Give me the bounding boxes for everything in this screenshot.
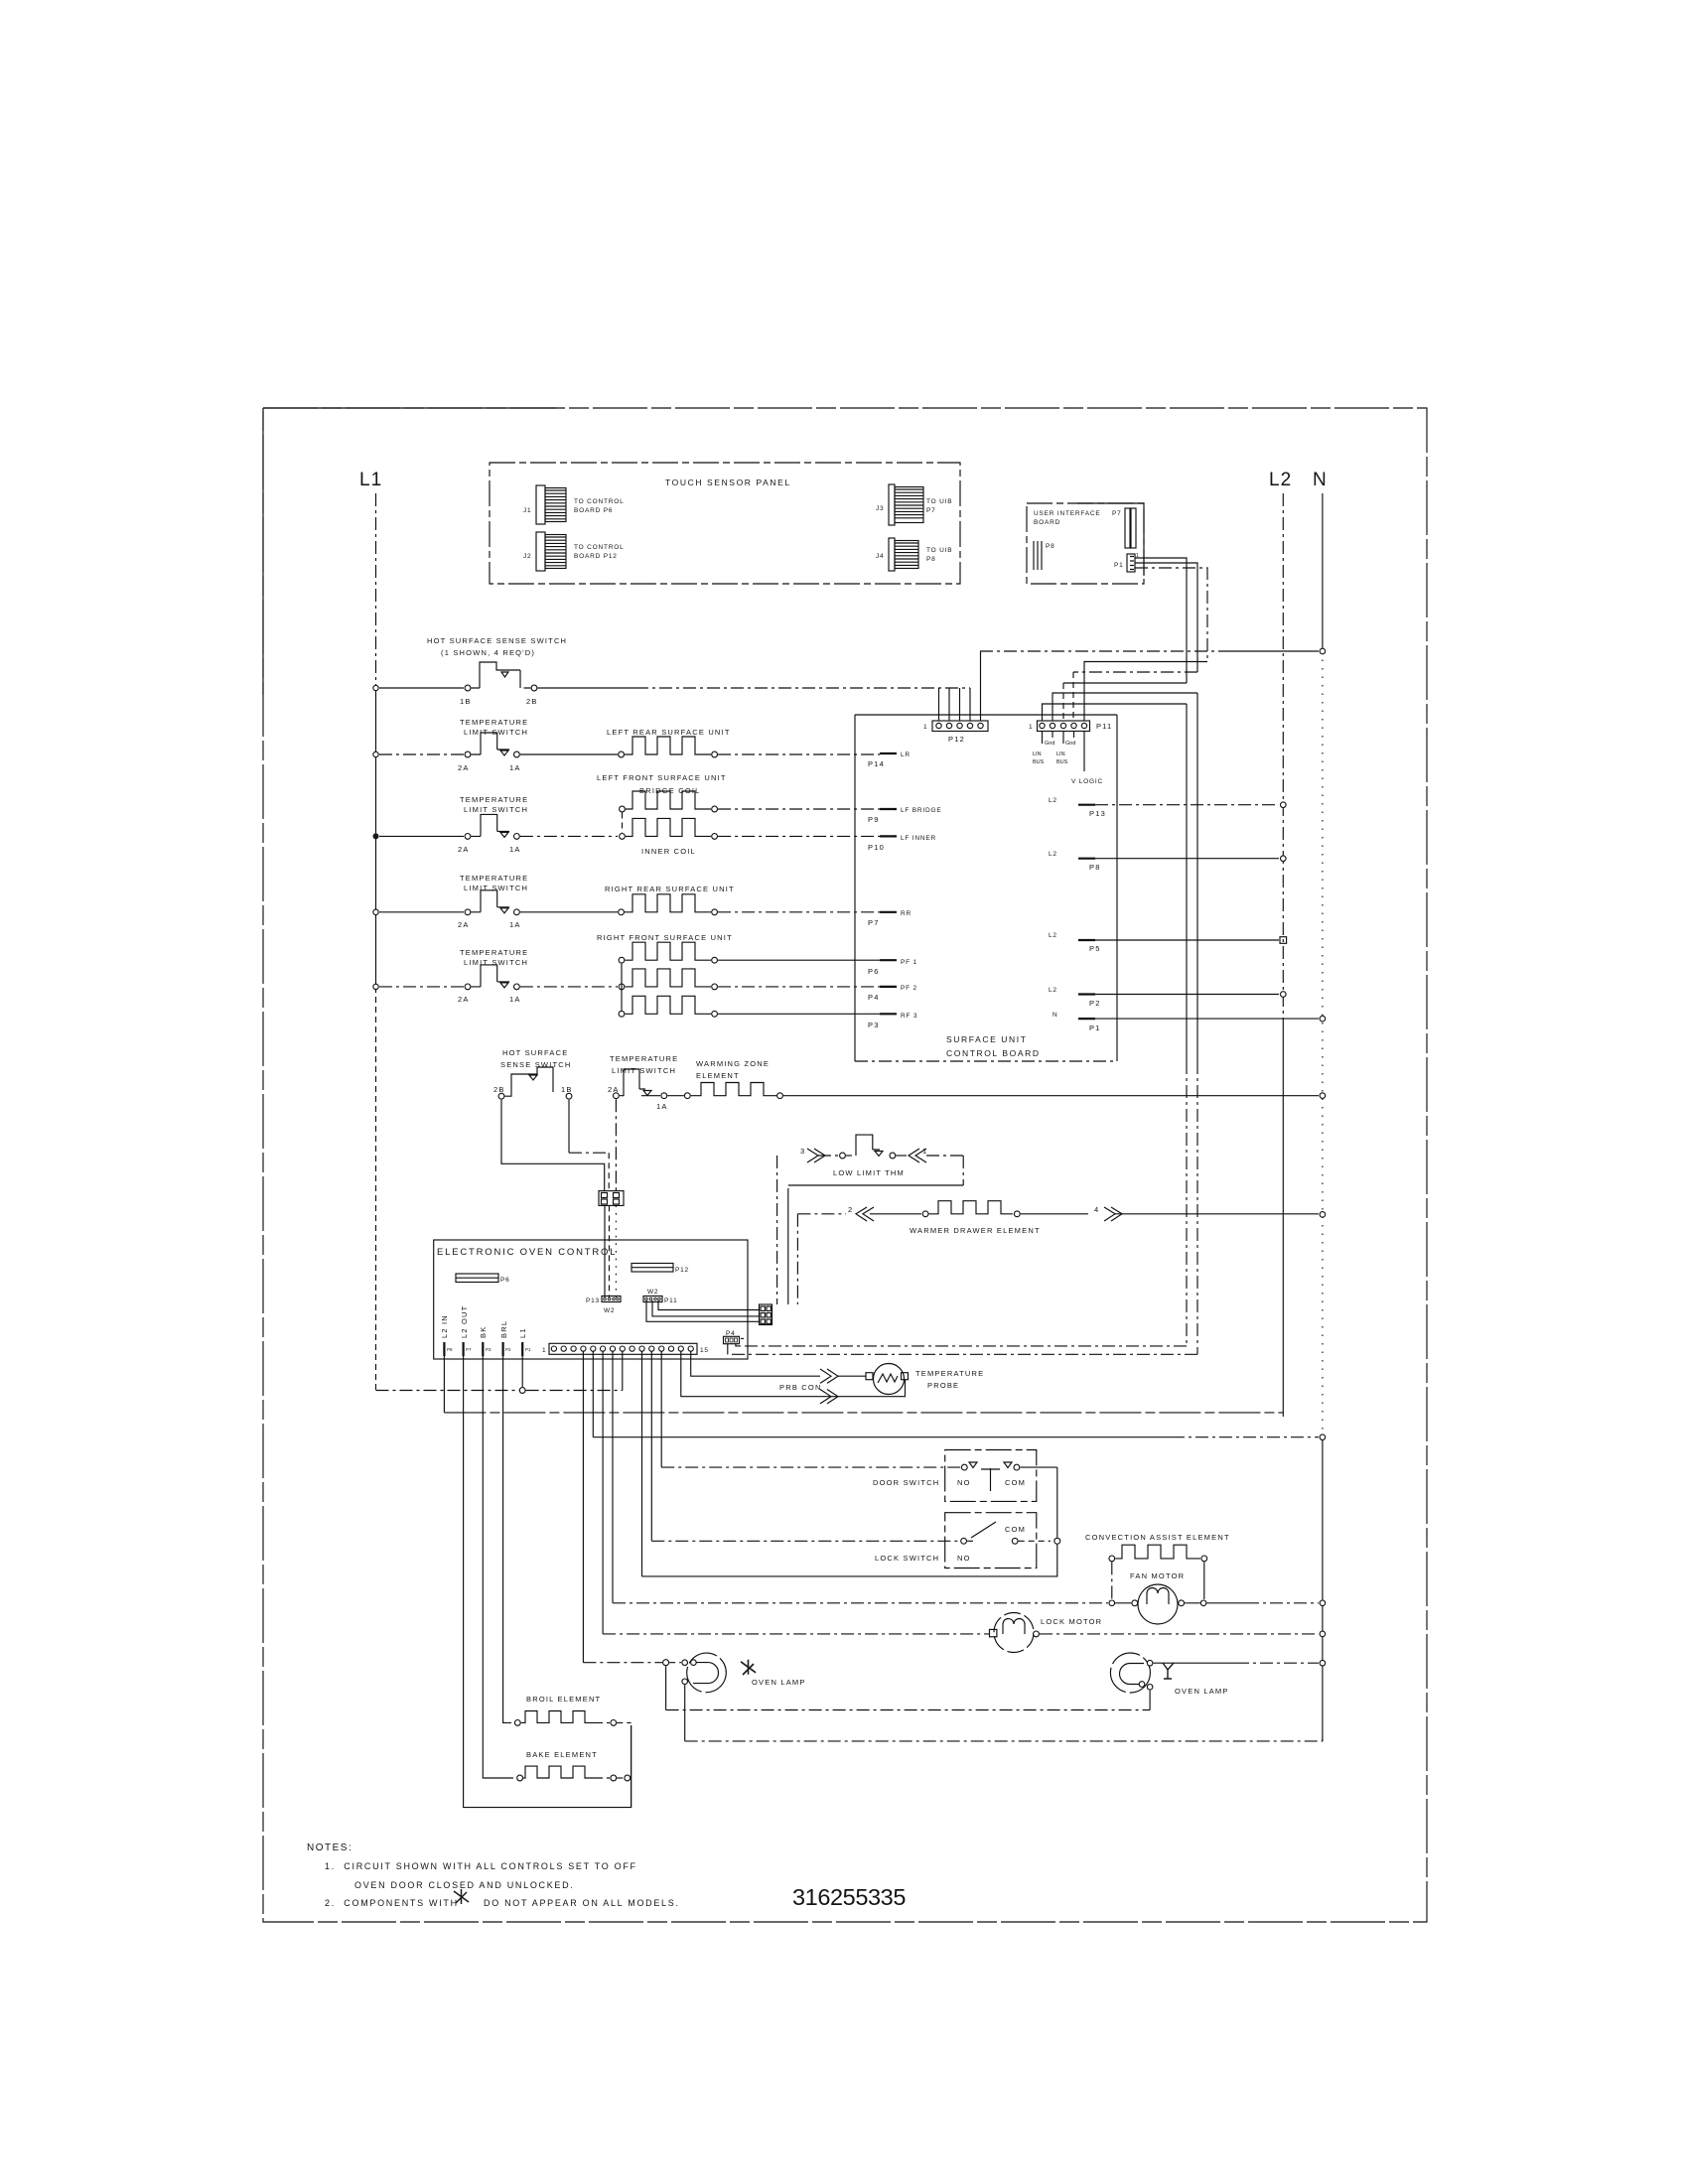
svg-text:P8: P8 [447,1347,453,1352]
svg-text:P11: P11 [664,1297,677,1304]
svg-text:BROIL ELEMENT: BROIL ELEMENT [526,1695,601,1704]
svg-text:LIMIT SWITCH: LIMIT SWITCH [612,1066,676,1075]
svg-text:1B: 1B [561,1085,573,1094]
svg-text:3: 3 [800,1147,805,1156]
svg-text:RIGHT FRONT SURFACE UNIT: RIGHT FRONT SURFACE UNIT [597,933,733,942]
svg-text:WARMING ZONE: WARMING ZONE [696,1059,770,1068]
svg-text:L2: L2 [1049,987,1057,994]
svg-text:2B: 2B [493,1085,505,1094]
svg-text:L2: L2 [1269,470,1292,490]
svg-text:W2: W2 [647,1289,658,1296]
svg-text:PRB CON: PRB CON [779,1383,822,1392]
svg-text:P4: P4 [868,993,880,1002]
svg-text:NOTES:: NOTES: [307,1843,352,1853]
svg-text:OVEN DOOR CLOSED AND UNLOCKED.: OVEN DOOR CLOSED AND UNLOCKED. [354,1880,575,1890]
svg-text:L2: L2 [1049,797,1057,804]
svg-text:LIN: LIN [1033,751,1042,757]
svg-text:TEMPERATURE: TEMPERATURE [915,1369,984,1378]
svg-text:1: 1 [923,724,927,731]
svg-text:P3: P3 [868,1021,880,1029]
svg-text:LEFT REAR SURFACE UNIT: LEFT REAR SURFACE UNIT [607,728,731,737]
svg-text:N: N [1313,470,1328,490]
svg-text:2. COMPONENTS WITH DO NO: 2. COMPONENTS WITH DO NOT APPEAR ON ALL … [325,1898,680,1908]
svg-text:P8: P8 [1046,543,1055,550]
svg-text:TEMPERATURE: TEMPERATURE [460,874,528,883]
svg-text:PROBE: PROBE [927,1381,959,1390]
svg-text:2A: 2A [458,845,470,854]
svg-text:N: N [1052,1012,1058,1019]
svg-text:LR: LR [901,751,911,758]
svg-text:1: 1 [1029,724,1033,731]
svg-text:RR: RR [901,910,912,917]
svg-text:P7: P7 [926,507,936,514]
svg-text:LF BRIDGE: LF BRIDGE [901,807,942,814]
svg-text:HOT SURFACE SENSE SWITCH: HOT SURFACE SENSE SWITCH [427,636,567,645]
svg-text:BUS: BUS [1056,759,1068,765]
svg-text:P5: P5 [1089,944,1101,953]
svg-text:LIN: LIN [1056,751,1065,757]
svg-text:BUS: BUS [1033,759,1045,765]
svg-text:TEMPERATURE: TEMPERATURE [460,718,528,727]
svg-text:DOOR SWITCH: DOOR SWITCH [873,1478,939,1487]
svg-text:HOT SURFACE: HOT SURFACE [502,1048,568,1057]
svg-text:1A: 1A [656,1102,668,1111]
svg-text:1A: 1A [509,763,521,772]
svg-text:L2: L2 [1049,932,1057,939]
svg-text:BOARD: BOARD [1034,519,1060,526]
svg-text:LIMIT SWITCH: LIMIT SWITCH [464,958,528,967]
svg-text:P1: P1 [1114,562,1124,569]
svg-text:2: 2 [848,1205,853,1214]
svg-text:V LOGIC: V LOGIC [1071,778,1103,785]
svg-text:P6: P6 [868,967,880,976]
svg-text:BOARD P12: BOARD P12 [574,553,618,560]
svg-text:L1: L1 [359,470,382,490]
svg-text:BAKE ELEMENT: BAKE ELEMENT [526,1750,598,1759]
svg-text:COM: COM [1005,1525,1026,1534]
svg-text:15: 15 [700,1347,709,1354]
svg-text:(1 SHOWN, 4 REQ'D): (1 SHOWN, 4 REQ'D) [441,648,535,657]
svg-text:4: 4 [1094,1205,1099,1214]
svg-text:P1: P1 [525,1347,531,1352]
svg-text:P14: P14 [868,759,885,768]
svg-text:P2: P2 [1089,999,1101,1008]
svg-text:1: 1 [922,1147,927,1156]
svg-text:P12: P12 [948,735,965,744]
svg-text:SURFACE UNIT: SURFACE UNIT [946,1034,1028,1044]
svg-text:P2: P2 [505,1347,511,1352]
svg-text:TO CONTROL: TO CONTROL [574,498,625,505]
svg-text:BK: BK [479,1326,488,1338]
svg-text:2A: 2A [458,763,470,772]
svg-text:FAN MOTOR: FAN MOTOR [1130,1571,1185,1580]
svg-text:TO UIB: TO UIB [926,498,952,505]
svg-text:ELEMENT: ELEMENT [696,1071,740,1080]
svg-text:P8: P8 [1089,863,1101,872]
svg-text:J3: J3 [876,505,884,512]
svg-text:NO: NO [957,1478,971,1487]
svg-text:TO CONTROL: TO CONTROL [574,544,625,551]
svg-text:1. CIRCUIT SHOWN WITH ALL CON: 1. CIRCUIT SHOWN WITH ALL CONTROLS SET T… [325,1861,637,1871]
svg-text:1A: 1A [509,920,521,929]
svg-text:USER INTERFACE: USER INTERFACE [1034,510,1101,517]
svg-text:TOUCH SENSOR PANEL: TOUCH SENSOR PANEL [665,478,791,487]
svg-text:P13: P13 [1089,809,1106,818]
svg-text:PF 2: PF 2 [901,985,917,992]
svg-text:P13: P13 [586,1297,600,1304]
svg-text:P6: P6 [500,1277,510,1284]
svg-text:1A: 1A [509,995,521,1004]
svg-text:P8: P8 [926,556,936,563]
svg-text:LF INNER: LF INNER [901,835,936,842]
svg-text:Gnd: Gnd [1065,741,1075,747]
svg-text:P10: P10 [868,843,885,852]
svg-text:OVEN LAMP: OVEN LAMP [1175,1687,1229,1696]
svg-text:Gnd: Gnd [1045,741,1054,747]
svg-text:LOCK MOTOR: LOCK MOTOR [1041,1617,1102,1626]
svg-text:LEFT FRONT SURFACE UNIT: LEFT FRONT SURFACE UNIT [597,773,727,782]
svg-text:ELECTRONIC OVEN CONTROL: ELECTRONIC OVEN CONTROL [437,1247,617,1258]
svg-text:INNER COIL: INNER COIL [641,847,696,856]
svg-text:TEMPERATURE: TEMPERATURE [610,1054,678,1063]
svg-text:COM: COM [1005,1478,1026,1487]
svg-text:OVEN LAMP: OVEN LAMP [752,1678,806,1687]
svg-text:CONTROL BOARD: CONTROL BOARD [946,1048,1041,1058]
svg-text:TEMPERATURE: TEMPERATURE [460,948,528,957]
svg-text:J2: J2 [523,553,531,560]
svg-text:NO: NO [957,1554,971,1563]
svg-text:BRL: BRL [499,1320,508,1338]
svg-text:TEMPERATURE: TEMPERATURE [460,795,528,804]
svg-text:J1: J1 [523,507,531,514]
svg-text:LOCK SWITCH: LOCK SWITCH [875,1554,939,1563]
svg-text:LIMIT SWITCH: LIMIT SWITCH [464,884,528,892]
svg-text:J4: J4 [876,553,884,560]
svg-text:P1: P1 [1089,1024,1101,1032]
svg-text:PF 1: PF 1 [901,959,917,966]
svg-text:L2: L2 [1049,851,1057,858]
svg-text:LIMIT SWITCH: LIMIT SWITCH [464,805,528,814]
svg-text:RIGHT REAR SURFACE UNIT: RIGHT REAR SURFACE UNIT [605,885,735,893]
svg-text:P7: P7 [466,1347,472,1352]
svg-text:P12: P12 [675,1267,689,1274]
svg-text:L1: L1 [518,1327,527,1338]
svg-text:1B: 1B [460,697,472,706]
svg-text:W2: W2 [604,1307,615,1314]
svg-text:WARMER DRAWER ELEMENT: WARMER DRAWER ELEMENT [910,1226,1041,1235]
svg-text:1A: 1A [509,845,521,854]
svg-text:TO UIB: TO UIB [926,547,952,554]
svg-text:P7: P7 [1112,510,1122,517]
svg-text:L2 OUT: L2 OUT [460,1305,469,1338]
svg-text:P11: P11 [1096,722,1112,731]
svg-text:RF 3: RF 3 [901,1013,917,1020]
svg-text:L2 IN: L2 IN [440,1314,449,1338]
svg-text:P3: P3 [486,1347,491,1352]
svg-text:2A: 2A [458,920,470,929]
svg-text:2A: 2A [458,995,470,1004]
svg-text:2B: 2B [526,697,538,706]
svg-text:SENSE SWITCH: SENSE SWITCH [500,1060,572,1069]
svg-text:P7: P7 [868,918,880,927]
svg-text:LOW LIMIT THM: LOW LIMIT THM [833,1168,905,1177]
svg-text:P9: P9 [868,815,880,824]
svg-text:BOARD P6: BOARD P6 [574,507,613,514]
svg-text:CONVECTION ASSIST ELEMENT: CONVECTION ASSIST ELEMENT [1085,1533,1230,1542]
svg-text:1: 1 [542,1347,546,1354]
svg-text:316255335: 316255335 [792,1884,906,1910]
